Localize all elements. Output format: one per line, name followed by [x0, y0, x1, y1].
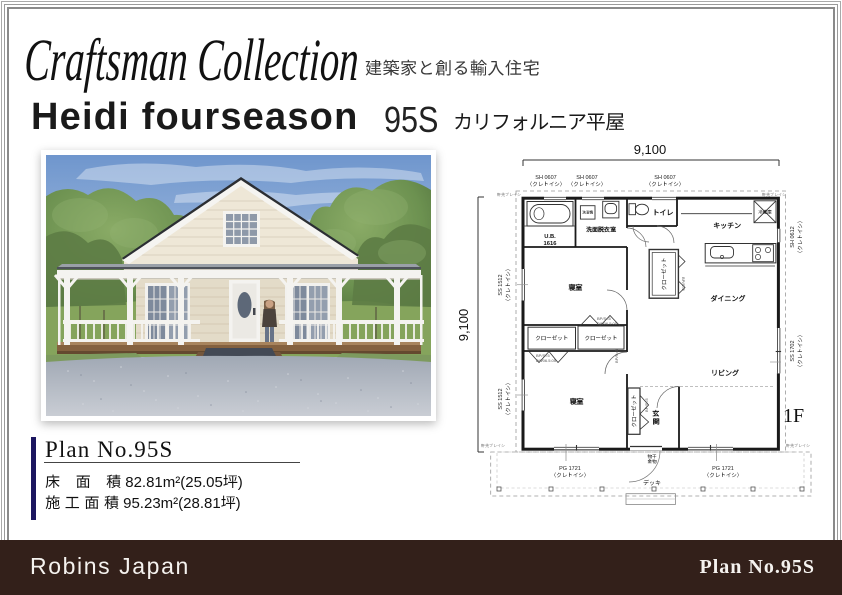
svg-text:SS 1512: SS 1512 — [498, 274, 504, 295]
svg-text:キッチン: キッチン — [713, 222, 741, 230]
svg-text:クローゼット: クローゼット — [584, 335, 617, 342]
svg-text:関: 関 — [653, 418, 660, 426]
svg-text:〈クレトイシ〉: 〈クレトイシ〉 — [797, 332, 804, 371]
svg-text:BP/S=5: BP/S=5 — [614, 349, 619, 363]
svg-text:クローゼット: クローゼット — [631, 394, 638, 427]
svg-text:DW06.5.05: DW06.5.05 — [536, 358, 557, 363]
svg-text:〈クレトイシ〉: 〈クレトイシ〉 — [797, 218, 804, 257]
svg-text:9,100: 9,100 — [456, 309, 471, 342]
svg-text:〈クレトイシ〉: 〈クレトイシ〉 — [527, 181, 566, 188]
svg-text:BP/S=5: BP/S=5 — [644, 398, 649, 412]
svg-text:9,100: 9,100 — [634, 142, 667, 157]
svg-text:軒先ブレイシ: 軒先ブレイシ — [497, 192, 521, 197]
svg-text:〈クレトイシ〉: 〈クレトイシ〉 — [646, 181, 685, 188]
svg-text:金物: 金物 — [648, 459, 657, 464]
svg-text:軒先ブレイシ: 軒先ブレイシ — [762, 192, 786, 197]
svg-text:1616: 1616 — [544, 241, 558, 247]
svg-text:クローゼット: クローゼット — [661, 257, 668, 290]
svg-text:U.B.: U.B. — [544, 234, 556, 240]
svg-text:冷蔵庫: 冷蔵庫 — [758, 210, 772, 215]
svg-text:〈クレトイシ〉: 〈クレトイシ〉 — [704, 472, 743, 479]
svg-text:〈クレトイシ〉: 〈クレトイシ〉 — [505, 266, 512, 305]
svg-text:PG 1721: PG 1721 — [712, 466, 734, 472]
svg-text:寝室: 寝室 — [569, 398, 584, 406]
svg-text:SH 0612: SH 0612 — [790, 226, 796, 247]
svg-text:寝室: 寝室 — [568, 284, 583, 292]
svg-text:トイレ: トイレ — [653, 209, 674, 217]
svg-text:洗濯機: 洗濯機 — [581, 210, 593, 215]
svg-text:PG 1721: PG 1721 — [559, 466, 581, 472]
svg-text:SS 1702: SS 1702 — [790, 340, 796, 361]
svg-text:洗面脱衣室: 洗面脱衣室 — [586, 226, 616, 234]
svg-text:SS 1512: SS 1512 — [498, 388, 504, 409]
svg-text:軒先ブレイシ: 軒先ブレイシ — [786, 443, 810, 448]
svg-text:軒先ブレイシ: 軒先ブレイシ — [481, 443, 505, 448]
svg-text:デッキ: デッキ — [643, 479, 661, 487]
svg-text:〈クレトイシ〉: 〈クレトイシ〉 — [505, 380, 512, 419]
svg-text:玄: 玄 — [653, 409, 660, 418]
svg-text:ダイニング: ダイニング — [711, 294, 746, 303]
svg-text:SH 0607: SH 0607 — [576, 175, 597, 181]
svg-text:SH 0607: SH 0607 — [654, 175, 675, 181]
svg-text:DW06.5.05: DW06.5.05 — [597, 321, 618, 326]
svg-text:クローゼット: クローゼット — [535, 335, 568, 342]
svg-text:リビング: リビング — [711, 369, 739, 378]
svg-text:〈クレトイシ〉: 〈クレトイシ〉 — [568, 181, 607, 188]
svg-text:〈クレトイシ〉: 〈クレトイシ〉 — [551, 472, 590, 479]
svg-text:SH 0607: SH 0607 — [535, 175, 556, 181]
svg-text:1F: 1F — [783, 405, 804, 427]
svg-text:BP/S=5: BP/S=5 — [681, 277, 686, 291]
